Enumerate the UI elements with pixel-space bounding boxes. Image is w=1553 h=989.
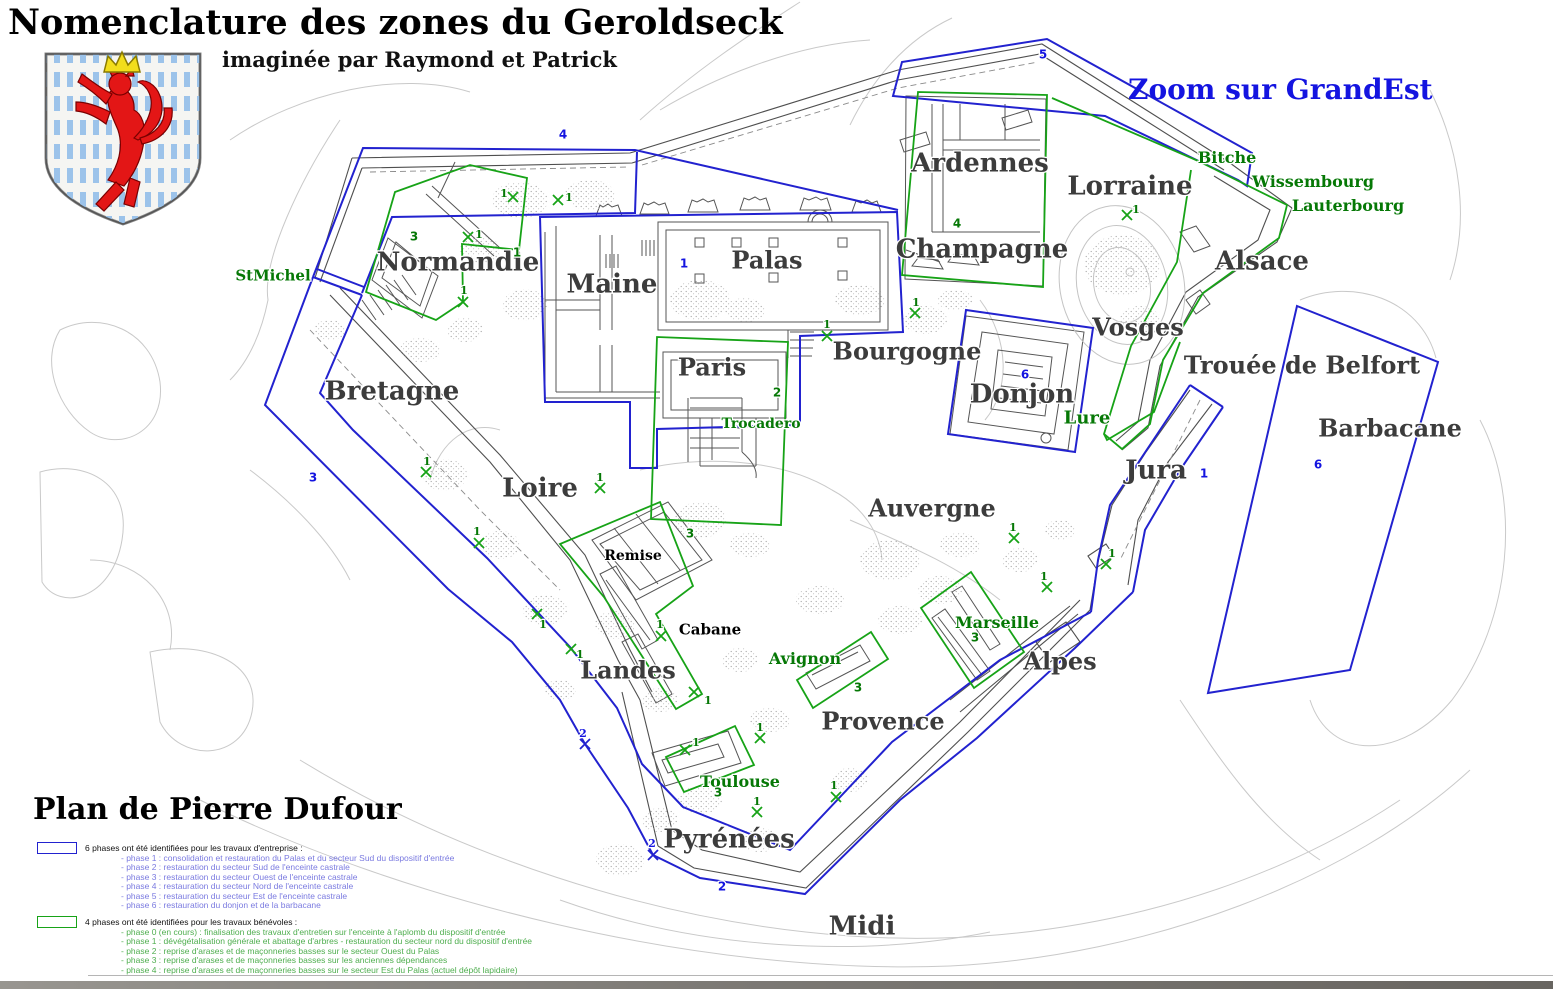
green-x-mark-15 (1042, 582, 1052, 592)
blue-phase-number-5-1: 5 (1039, 47, 1047, 61)
plan-credit: Plan de Pierre Dufour (33, 792, 402, 827)
green-x-label-7: 1 (576, 648, 584, 661)
region-label-trou-e-de-belfort: Trouée de Belfort (1184, 351, 1420, 380)
green-label-lure: Lure (1064, 407, 1111, 428)
region-label-barbacane: Barbacane (1318, 414, 1462, 443)
legend-entreprise: 6 phases ont été identifiées pour les tr… (37, 841, 1017, 910)
green-x-mark-17 (752, 807, 762, 817)
green-label-lauterbourg: Lauterbourg (1292, 196, 1404, 215)
green-x-label-17: 1 (753, 795, 761, 808)
zone-entree-1 (1091, 385, 1223, 612)
legend-green-heading: 4 phases ont été identifiées pour les tr… (85, 917, 297, 927)
green-x-label-1: 1 (565, 191, 573, 204)
page-title: Nomenclature des zones du Geroldseck (8, 2, 783, 43)
green-x-label-11: 1 (823, 318, 831, 331)
green-label-marseille: Marseille (955, 613, 1039, 632)
region-label-jura: Jura (1123, 455, 1187, 485)
region-label-maine: Maine (567, 269, 658, 299)
region-label-bourgogne: Bourgogne (833, 337, 982, 366)
blue-phase-number-4-0: 4 (559, 127, 567, 141)
region-label-loire: Loire (502, 473, 578, 503)
green-x-label-10: 1 (704, 694, 712, 707)
legend-benevoles: 4 phases ont été identifiées pour les tr… (37, 915, 1017, 975)
region-label-ardennes: Ardennes (910, 148, 1049, 178)
region-label-landes: Landes (580, 656, 675, 685)
green-phase-number-3-4: 3 (854, 680, 862, 694)
region-label-vosges: Vosges (1091, 313, 1184, 342)
bottom-hairline (88, 975, 1553, 976)
region-label-donjon: Donjon (970, 379, 1075, 409)
green-x-mark-20 (755, 733, 765, 743)
green-x-label-2: 1 (475, 228, 483, 241)
green-x-label-6: 1 (539, 618, 547, 631)
green-phase-number-2-2: 2 (773, 385, 781, 399)
green-x-mark-13 (1122, 210, 1132, 220)
legend-blue-swatch (37, 842, 77, 854)
green-label-wissembourg: Wissembourg (1251, 172, 1374, 191)
page-subtitle: imaginée par Raymond et Patrick (222, 47, 617, 72)
green-x-mark-1 (553, 195, 563, 205)
green-x-mark-8 (595, 483, 605, 493)
blue-phase-number-1-3: 1 (680, 256, 688, 270)
green-x-label-4: 1 (423, 455, 431, 468)
green-phase-number-4-1: 4 (953, 216, 961, 230)
green-phase-number-3-0: 3 (410, 229, 418, 243)
legend-green-swatch (37, 916, 77, 928)
green-x-mark-10 (689, 687, 699, 697)
green-x-label-9: 1 (656, 618, 664, 631)
region-label-auvergne: Auvergne (867, 494, 995, 523)
green-x-label-12: 1 (912, 296, 920, 309)
green-x-label-20: 1 (756, 721, 764, 734)
map-canvas: ArdennesLorraineChampagneAlsacePalasMain… (0, 0, 1553, 989)
green-x-mark-7 (566, 644, 576, 654)
region-label-champagne: Champagne (896, 234, 1069, 264)
blue-phase-number-6-6: 6 (1314, 457, 1322, 471)
green-label-toulouse: Toulouse (700, 772, 780, 791)
legend-blue-heading: 6 phases ont été identifiées pour les tr… (85, 843, 303, 853)
building-label-cabane: Cabane (679, 620, 741, 638)
green-x-label-5: 1 (473, 525, 481, 538)
green-phase-number-3-5: 3 (971, 630, 979, 644)
building-label-remise: Remise (604, 548, 662, 564)
green-x-mark-14 (1009, 533, 1019, 543)
region-label-palas: Palas (731, 246, 802, 275)
green-x-label-14: 1 (1009, 521, 1017, 534)
blue-x-mark-0 (580, 739, 590, 749)
green-x-label-18: 1 (830, 779, 838, 792)
region-label-paris: Paris (678, 353, 746, 382)
region-label-alpes: Alpes (1022, 647, 1096, 676)
green-phase-number-3-6: 3 (714, 785, 722, 799)
green-x-label-3: 1 (460, 284, 468, 297)
coat-of-arms (38, 46, 208, 231)
green-phase-number-3-3: 3 (686, 526, 694, 540)
region-label-lorraine: Lorraine (1067, 171, 1192, 201)
green-x-mark-9 (656, 631, 666, 641)
green-x-label-0: 1 (500, 187, 508, 200)
blue-x-label-0: 2 (579, 727, 587, 740)
castle-walls-dashed (310, 62, 1200, 590)
legend-item-blue-5: - phase 6 : restauration du donjon et de… (121, 901, 1017, 910)
blue-phase-number-1-5: 1 (1200, 466, 1208, 480)
green-label-trocadero: Trocadero (721, 416, 800, 432)
green-phase-number-1-7: 1 (513, 245, 521, 259)
green-label-bitche: Bitche (1198, 148, 1257, 167)
green-x-label-8: 1 (596, 471, 604, 484)
blue-phase-number-3-2: 3 (309, 470, 317, 484)
green-label-stmichel: StMichel (235, 266, 311, 284)
green-label-avignon: Avignon (768, 649, 842, 668)
blue-phase-number-6-4: 6 (1021, 367, 1029, 381)
green-x-label-13: 1 (1132, 203, 1140, 216)
region-label-bretagne: Bretagne (325, 376, 460, 406)
region-label-alsace: Alsace (1214, 246, 1309, 276)
legend-item-green-4: - phase 4 : reprise d'arases et de maçon… (121, 966, 1017, 975)
zone-avignon-3 (797, 632, 888, 708)
zoom-grandest-note: Zoom sur GrandEst (1128, 73, 1433, 106)
bottom-edge-bar (0, 981, 1553, 989)
green-x-label-16: 1 (1108, 547, 1116, 560)
region-label-provence: Provence (821, 707, 944, 736)
green-x-label-15: 1 (1040, 570, 1048, 583)
green-x-label-19: 1 (692, 736, 700, 749)
